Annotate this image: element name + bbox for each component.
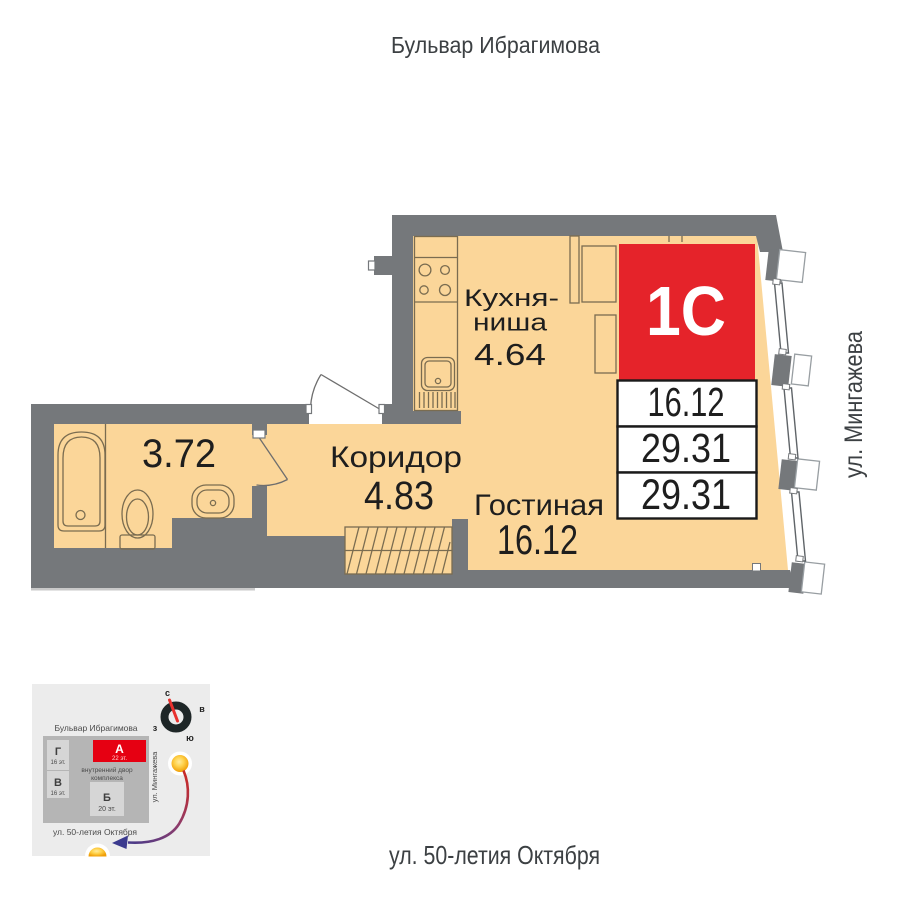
svg-text:комплекса: комплекса [91,775,123,782]
svg-text:ул. Мингажева: ул. Мингажева [150,751,159,803]
svg-text:4.83: 4.83 [364,474,434,518]
svg-text:20 эт.: 20 эт. [98,806,116,813]
svg-text:ю: ю [186,733,194,743]
svg-text:ниша: ниша [473,310,548,337]
svg-text:Коридор: Коридор [330,441,462,474]
svg-text:16.12: 16.12 [648,379,725,425]
svg-text:с: с [165,688,170,698]
svg-text:внутренний двор: внутренний двор [81,766,133,774]
svg-text:В: В [54,777,62,789]
svg-text:Бульвар Ибрагимова: Бульвар Ибрагимова [391,32,600,58]
svg-text:22 эт.: 22 эт. [112,756,127,762]
svg-text:Б: Б [103,792,111,804]
svg-text:4.64: 4.64 [474,337,546,372]
svg-text:ул. 50-летия Октября: ул. 50-летия Октября [389,840,600,870]
svg-text:А: А [115,742,124,756]
svg-text:ул. Мингажева: ул. Мингажева [840,331,868,478]
svg-text:з: з [153,723,158,733]
svg-text:3.72: 3.72 [142,432,216,476]
svg-text:16 эт.: 16 эт. [50,791,65,797]
svg-text:Г: Г [55,746,62,758]
svg-text:1С: 1С [646,272,726,350]
svg-text:Кухня-: Кухня- [464,285,559,312]
svg-text:в: в [199,704,205,714]
svg-text:29.31: 29.31 [641,425,731,471]
svg-text:29.31: 29.31 [641,471,731,519]
svg-text:Бульвар Ибрагимова: Бульвар Ибрагимова [54,723,137,733]
svg-text:16.12: 16.12 [497,516,578,563]
svg-text:ул. 50-летия Октября: ул. 50-летия Октября [53,827,137,837]
svg-text:16 эт.: 16 эт. [50,760,65,766]
